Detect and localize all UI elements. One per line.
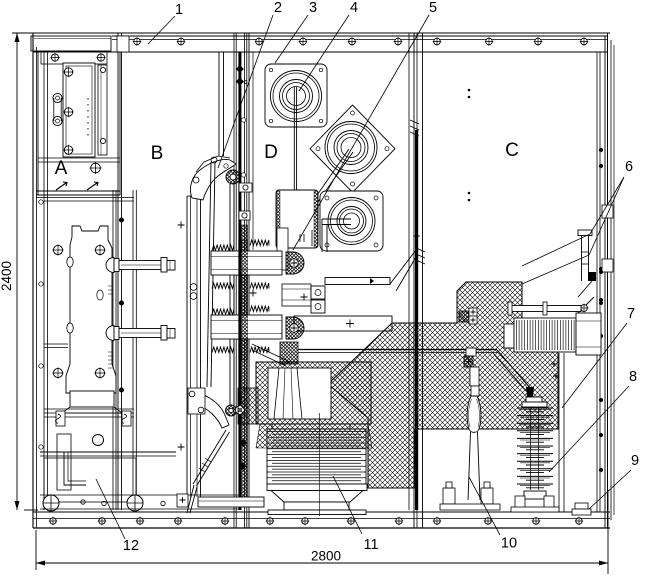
svg-text:2400: 2400 xyxy=(0,261,14,291)
svg-text:6: 6 xyxy=(625,159,633,175)
svg-text:A: A xyxy=(55,158,68,179)
svg-text:B: B xyxy=(151,143,164,164)
svg-text:5: 5 xyxy=(429,0,437,16)
svg-text:12: 12 xyxy=(123,538,139,554)
svg-text:4: 4 xyxy=(350,0,358,16)
svg-text:3: 3 xyxy=(309,0,317,16)
svg-text:9: 9 xyxy=(631,453,639,469)
svg-text:C: C xyxy=(505,140,519,161)
svg-text:1: 1 xyxy=(175,2,183,18)
svg-text:8: 8 xyxy=(629,369,637,385)
svg-text:11: 11 xyxy=(363,537,378,553)
svg-text:D: D xyxy=(264,142,278,163)
svg-text:10: 10 xyxy=(501,536,517,552)
svg-text:2800: 2800 xyxy=(311,549,341,564)
svg-text:2: 2 xyxy=(274,0,282,16)
svg-text:7: 7 xyxy=(627,306,635,322)
